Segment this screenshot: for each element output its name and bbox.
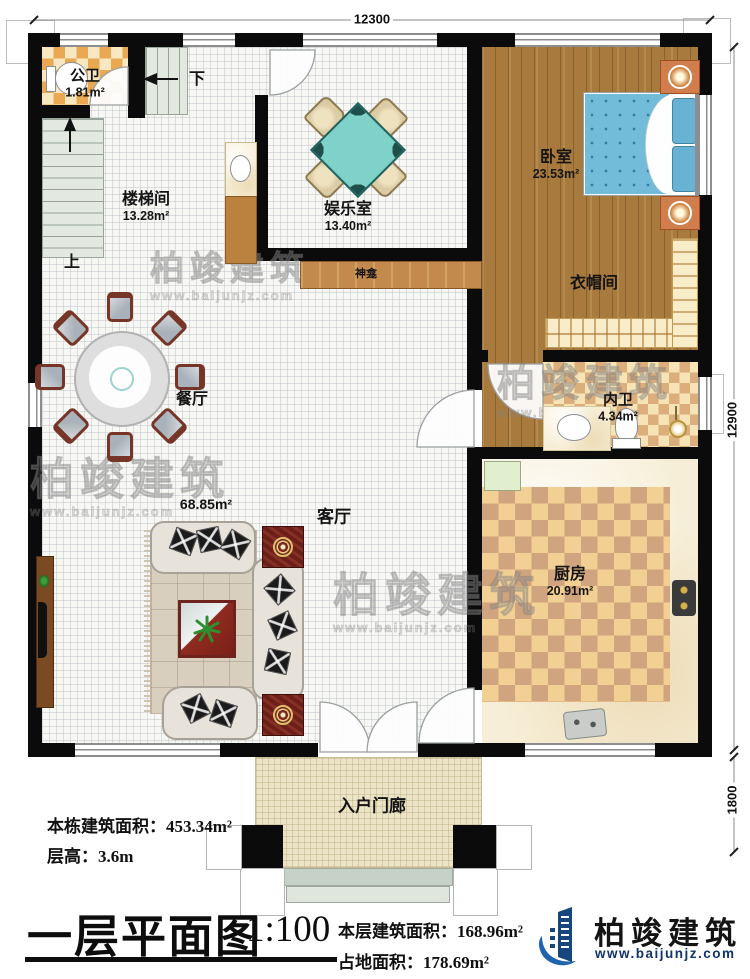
room-label-living: 客厅 bbox=[317, 507, 351, 526]
stove bbox=[672, 580, 696, 616]
page-title: 一层平面图 bbox=[27, 900, 262, 965]
stair-label-down: 下 bbox=[189, 71, 205, 89]
room-label-game-room: 娱乐室13.40m² bbox=[324, 201, 372, 233]
scale-value: 1:100 bbox=[246, 908, 330, 951]
plant-icon bbox=[192, 614, 222, 644]
dining-chair bbox=[175, 364, 205, 390]
room-label-bedroom: 卧室23.53m² bbox=[533, 149, 580, 181]
shower-stem bbox=[675, 406, 677, 420]
room-label-stairwell: 楼梯间13.28m² bbox=[122, 191, 170, 223]
stat-floor-area: 本层建筑面积：168.96m² bbox=[338, 917, 523, 942]
bed-headboard bbox=[695, 92, 699, 196]
plant-small bbox=[39, 575, 49, 587]
room-label-public-bath: 公卫1.81m² bbox=[65, 69, 105, 100]
side-table bbox=[262, 526, 304, 568]
room-label-porch: 入户门廊 bbox=[338, 796, 406, 815]
title-underline bbox=[25, 957, 337, 962]
shower-head-icon bbox=[669, 420, 687, 438]
stat-building-area: 本栋建筑面积：453.34m² bbox=[47, 812, 232, 837]
table-ornament bbox=[273, 537, 293, 557]
brand-logo-icon bbox=[536, 906, 588, 970]
dining-lazy-susan bbox=[110, 367, 134, 391]
sofa-pillow bbox=[196, 526, 223, 553]
room-label-kitchen: 厨房20.91m² bbox=[547, 566, 594, 598]
dimension-top: 12300 bbox=[351, 12, 393, 27]
bed-pillow bbox=[672, 146, 697, 192]
kitchen-sink bbox=[563, 708, 608, 740]
room-label-shrine: 神龛 bbox=[355, 268, 377, 280]
tv-screen bbox=[38, 602, 47, 658]
nightstand bbox=[660, 196, 700, 230]
refrigerator bbox=[484, 461, 521, 491]
table-ornament bbox=[273, 705, 293, 725]
side-table bbox=[262, 694, 304, 736]
lamp-icon bbox=[668, 201, 692, 225]
ensuite-sink bbox=[557, 414, 591, 441]
stat-site-area: 占地面积：178.69m² bbox=[338, 948, 489, 973]
brand-site: www.baijunjz.com bbox=[595, 946, 736, 961]
room-label-dining: 餐厅 bbox=[176, 391, 208, 409]
dining-chair bbox=[107, 292, 133, 322]
room-label-ensuite-bath: 内卫4.34m² bbox=[598, 393, 638, 424]
lamp-icon bbox=[668, 65, 692, 89]
nightstand bbox=[660, 60, 700, 94]
bed-pillow bbox=[672, 98, 697, 144]
dining-chair bbox=[107, 432, 133, 462]
dining-chair bbox=[35, 364, 65, 390]
stat-floor-height: 层高：3.6m bbox=[47, 842, 133, 867]
room-label-cloakroom: 衣帽间 bbox=[570, 275, 618, 293]
hall-cabinet bbox=[225, 196, 257, 264]
shrine-console bbox=[300, 261, 482, 289]
stair-label-up: 上 bbox=[64, 254, 80, 272]
hall-vanity-sink bbox=[230, 155, 251, 182]
dimension-right-porch: 1800 bbox=[725, 783, 740, 818]
ensuite-toilet-tank bbox=[612, 438, 641, 449]
dimension-right-main: 12900 bbox=[725, 399, 740, 441]
living-area-value: 68.85m² bbox=[180, 497, 232, 513]
sofa-pillow bbox=[264, 648, 291, 675]
floor-plan: 柏竣建筑 www.baijunjz.com 柏竣建筑 www.baijunjz.… bbox=[0, 0, 750, 979]
